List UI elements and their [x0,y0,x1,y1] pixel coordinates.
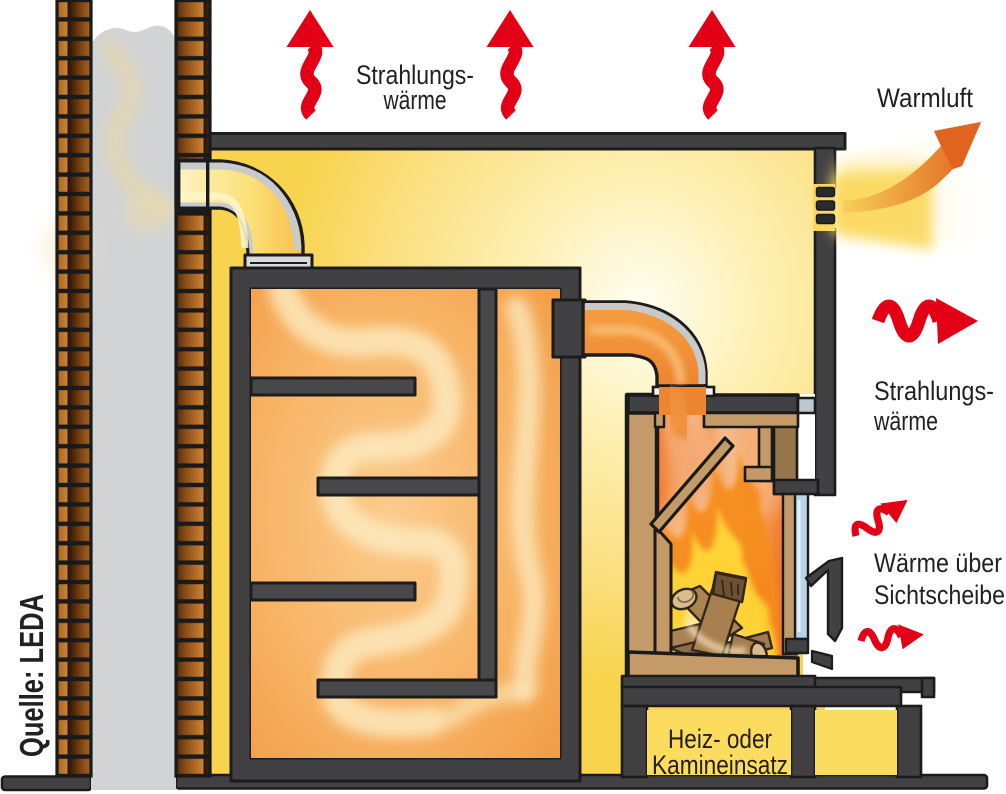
svg-text:wärme: wärme [873,406,938,436]
svg-text:Wärme über: Wärme über [874,548,1002,578]
svg-text:Sichtscheibe: Sichtscheibe [874,580,1005,610]
svg-text:Strahlungs-: Strahlungs- [874,376,994,406]
svg-text:Warmluft: Warmluft [877,83,973,113]
svg-text:Kamineinsatz: Kamineinsatz [652,750,788,780]
svg-text:Quelle: LEDA: Quelle: LEDA [13,594,50,757]
svg-text:wärme: wärme [383,85,447,115]
